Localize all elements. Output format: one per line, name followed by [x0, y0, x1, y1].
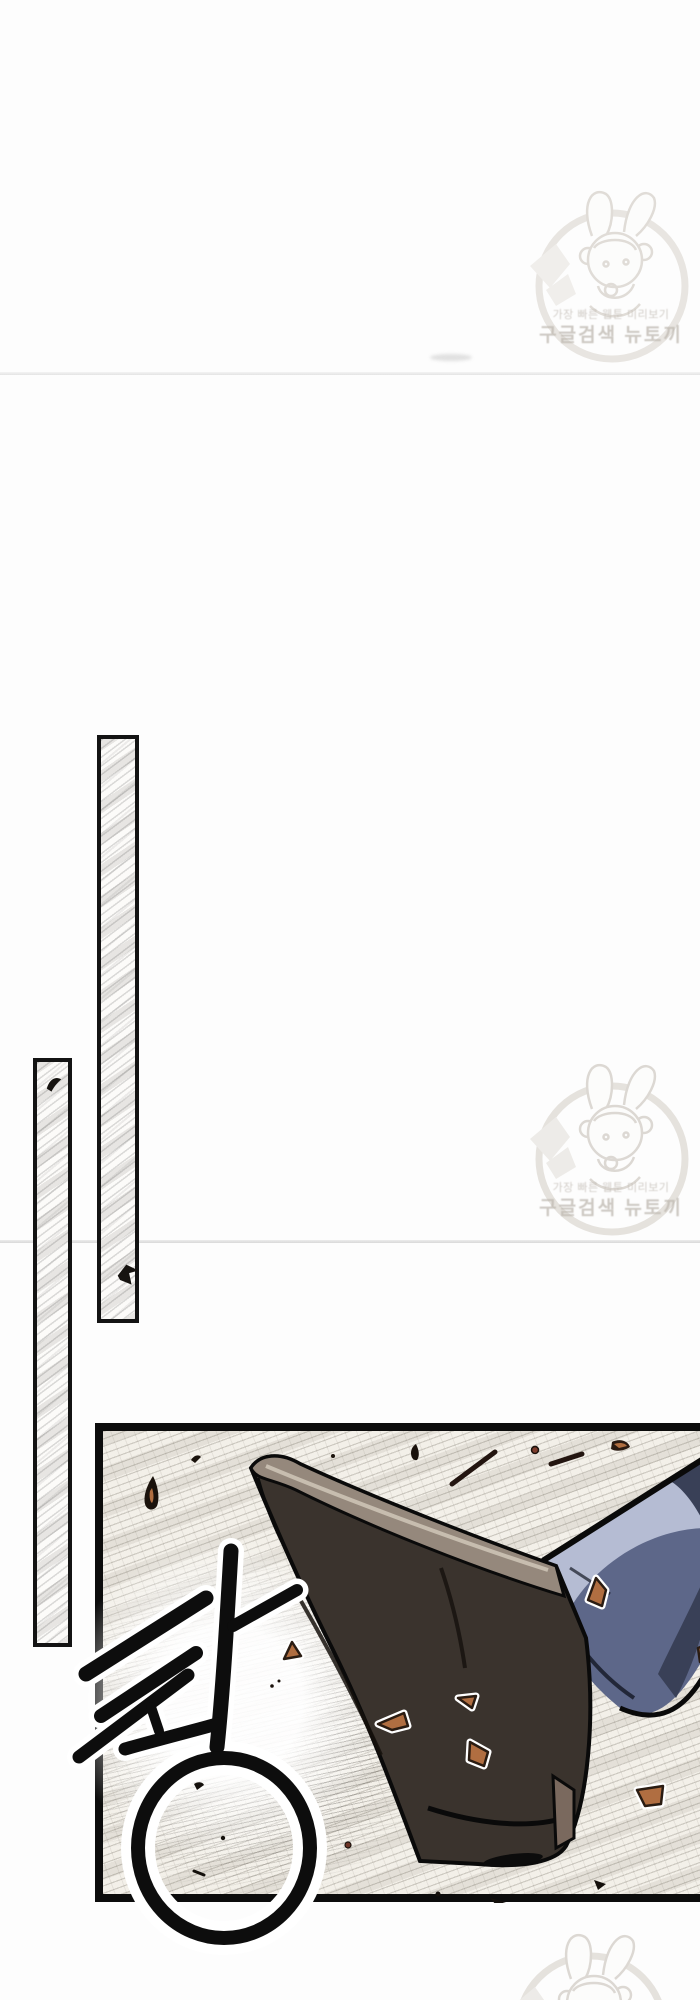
debris-flake-on-panel2 [44, 1075, 64, 1093]
section-divider-top [0, 372, 700, 375]
rabbit-skirt [590, 304, 640, 316]
hair-bun-left [580, 248, 596, 264]
debris-flake-path [117, 1264, 139, 1286]
watermark-sparkle [530, 244, 576, 306]
hair-bun-right [636, 1117, 652, 1133]
rabbit-eye-left [604, 262, 609, 267]
rabbit-ear-left [566, 1935, 591, 1979]
rabbit-ear-left [587, 1065, 612, 1109]
debris-flake-on-panel1 [115, 1263, 141, 1287]
rabbit-ear-right [624, 1066, 655, 1109]
rabbit-bangs [594, 240, 636, 250]
watermark-sparkle [530, 1117, 576, 1179]
rabbit-ear-left [587, 192, 612, 236]
sfx-kwang-calligraphy [60, 1528, 320, 1960]
rabbit-head [567, 1976, 621, 2000]
rabbit-head [588, 233, 642, 287]
panel-vertical-tall [97, 735, 139, 1323]
watermark-tagline: 가장 빠른 웹툰 미리보기 [516, 306, 700, 322]
rabbit-hands [605, 1157, 617, 1169]
rabbit-body [598, 284, 634, 298]
watermark-ring [539, 213, 685, 359]
watermark-ring [518, 1956, 664, 2000]
watermark-brand: 구글검색 뉴토끼 [516, 1193, 700, 1220]
hair-bun-left [580, 1121, 596, 1137]
debris-flake-path [45, 1077, 63, 1092]
comic-page: 쾅 가장 빠른 웹툰 미리보기 구글검색 뉴토끼 [0, 0, 700, 2000]
hair-bun-right [615, 1987, 631, 2000]
rabbit-eye-right [624, 1133, 629, 1138]
rabbit-eye-right [624, 260, 629, 265]
rabbit-skirt [590, 1177, 640, 1189]
ink-circle [138, 1758, 310, 1938]
debris-dot-brown [532, 1447, 539, 1454]
rabbit-hands [605, 284, 617, 296]
rabbit-ear-right [624, 193, 655, 236]
debris-bit-4 [345, 1842, 351, 1848]
watermark-newtoki-2: 가장 빠른 웹툰 미리보기 구글검색 뉴토끼 [516, 1051, 700, 1246]
rabbit-girl-watermark-icon [516, 1051, 700, 1246]
watermark-tagline: 가장 빠른 웹툰 미리보기 [516, 1179, 700, 1195]
watermark-newtoki-1: 가장 빠른 웹툰 미리보기 구글검색 뉴토끼 [516, 178, 700, 373]
watermark-sparkle [509, 1987, 555, 2000]
debris-bit-5 [436, 1892, 441, 1897]
hair-bun-right [636, 244, 652, 260]
debris-teardrop-small [411, 1444, 419, 1460]
debris-bit-6 [594, 1880, 606, 1890]
rabbit-body [598, 1157, 634, 1171]
rabbit-bangs [594, 1113, 636, 1123]
debris-streak-1 [452, 1452, 495, 1484]
watermark-newtoki-3: 가장 빠른 웹툰 미리보기 구글검색 뉴토끼 [495, 1921, 685, 2000]
smudge-mark [430, 354, 472, 361]
rabbit-girl-watermark-icon [495, 1921, 685, 2000]
rabbit-girl-watermark-icon [516, 178, 700, 373]
heel-light-face [553, 1776, 574, 1848]
debris-bit-7 [490, 1898, 506, 1903]
watermark-brand: 구글검색 뉴토끼 [516, 320, 700, 347]
watermark-ring [539, 1086, 685, 1232]
debris-dot-1 [331, 1454, 335, 1458]
rabbit-head [588, 1106, 642, 1160]
rabbit-bangs [573, 1983, 615, 1993]
rabbit-eye-left [604, 1135, 609, 1140]
rabbit-ear-right [603, 1936, 634, 1979]
hair-bun-left [559, 1991, 575, 2000]
debris-curl [191, 1455, 201, 1463]
debris-streak-2 [551, 1454, 582, 1464]
